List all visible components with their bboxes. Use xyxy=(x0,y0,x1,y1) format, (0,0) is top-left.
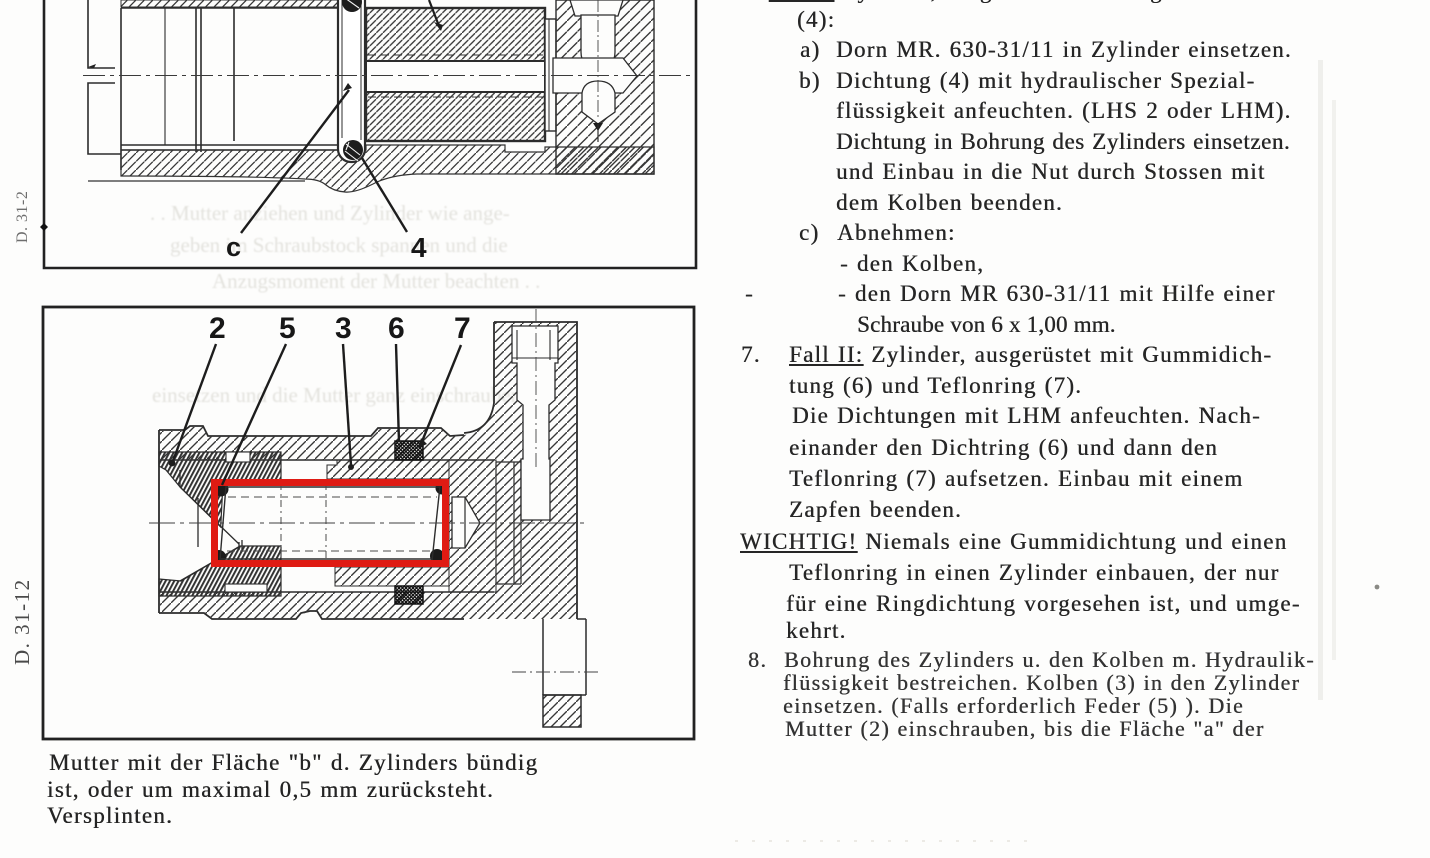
svg-text:einsetzen und die Mutter g: einsetzen und die Mutter ganz einschraub… xyxy=(152,383,526,407)
svg-text:Anzugsmoment der Mutter bea: Anzugsmoment der Mutter beachten . . xyxy=(212,269,540,293)
svg-text:2: 2 xyxy=(209,312,226,345)
svg-text:5: 5 xyxy=(279,312,296,345)
svg-text:c: c xyxy=(226,232,241,262)
svg-text:D. 31-12: D. 31-12 xyxy=(10,578,34,665)
svg-text:7: 7 xyxy=(454,312,471,345)
svg-text:geben im Schraubstock spann: geben im Schraubstock spannen und die xyxy=(170,233,508,257)
svg-text:. . Mutter anziehen und Zyli: . . Mutter anziehen und Zylinder wie ang… xyxy=(150,201,510,225)
svg-text:3: 3 xyxy=(335,312,352,345)
svg-text:D. 31-2: D. 31-2 xyxy=(14,191,31,243)
svg-text:4: 4 xyxy=(411,232,427,263)
svg-text:6: 6 xyxy=(388,312,405,345)
